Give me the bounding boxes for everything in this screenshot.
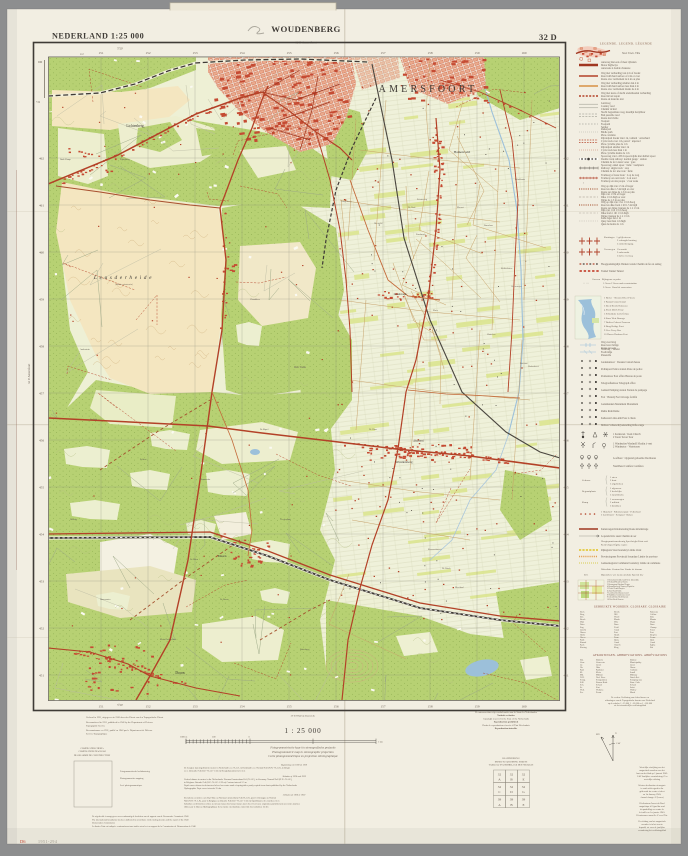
svg-text:De Halm: De Halm [190, 559, 198, 561]
svg-text:Westelijke afwijking van het: Westelijke afwijking van het [639, 766, 664, 769]
svg-text:B.S.: B.S. [584, 574, 589, 577]
svg-text:Kerk Chapel Église repère: Kerk Chapel Église repère [601, 543, 628, 546]
svg-text:De Ruif: De Ruif [408, 206, 416, 209]
svg-text:Waterlinie Custom line Limit: Waterlinie Custom line Limite de douane [601, 568, 643, 571]
svg-text:Église: Église [650, 644, 655, 647]
svg-text:La limite d'état est indiquée: La limite d'état est indiquée conforméme… [92, 825, 197, 828]
svg-text:32: 32 [498, 772, 502, 776]
svg-text:Quai de moins de 1 m: Quai de moins de 1 m [601, 223, 623, 226]
svg-text:COMPILATION DIAGRAM: COMPILATION DIAGRAM [78, 750, 105, 753]
svg-text:Brinkkanis: Brinkkanis [515, 179, 525, 181]
svg-text:Zwart: Zwart [596, 692, 602, 694]
svg-text:2 Kanaal Canal Canal: 2 Kanaal Canal Canal [604, 301, 626, 304]
svg-text:Politiepost Police station P: Politiepost Police station Poste de poli… [601, 368, 643, 371]
svg-text:156: 156 [333, 705, 338, 709]
svg-text:Grenskantoor · Douane Custom: Grenskantoor · Douane Custom house [601, 361, 641, 364]
svg-text:Décroissance annuelle: 6' vers: Décroissance annuelle: 6' vers l'Est. [636, 815, 668, 817]
svg-text:Tunnel Tunnel Tunnel: Tunnel Tunnel Tunnel [601, 270, 624, 273]
svg-text:De Kapel: De Kapel [260, 429, 269, 431]
svg-text:Militair Schietschijvenstellin: Militair Schietschijvenstelling Rifle-ra… [601, 424, 645, 427]
svg-text:bepaald; zie voor de jaarlijks: bepaald; zie voor de jaarlijkse [639, 827, 665, 829]
svg-text:459: 459 [563, 298, 568, 302]
svg-text:3 israëlitische: 3 israëlitische [610, 493, 625, 496]
svg-text:verandering het verklaringsbla: verandering het verklaringsblad [638, 829, 667, 832]
svg-text:Tramway en site propre · 2 sur: Tramway en site propre · 2 sur route [601, 180, 639, 183]
svg-text:Heihuis: Heihuis [70, 519, 77, 521]
svg-text:Vinkenhoef: Vinkenhoef [528, 365, 539, 368]
svg-text:Postkantoor Post office Bure: Postkantoor Post office Bureau de poste [601, 375, 643, 378]
svg-text:Levé photogrammetrique: Levé photogrammetrique [120, 784, 142, 787]
svg-text:460: 460 [39, 251, 44, 255]
svg-text:E: E [522, 778, 524, 782]
svg-text:la feuille au 1er janvier 1943: la feuille au 1er janvier 1943: [639, 811, 665, 814]
svg-text:hart van het blad op 1 januari: hart van het blad op 1 januari 1943: [636, 773, 668, 775]
svg-text:Den Treek: Den Treek [294, 366, 306, 369]
svg-text:Black: Black [630, 692, 636, 694]
svg-text:1000 m: 1000 m [180, 736, 187, 739]
svg-text:Moorst: Moorst [457, 207, 464, 209]
svg-text:De hoogten zijn uitgedrukt in: De hoogten zijn uitgedrukt in meters in … [184, 767, 290, 770]
svg-text:455: 455 [39, 486, 44, 490]
svg-text:Heetveld: Heetveld [374, 223, 383, 225]
svg-text:155: 155 [286, 51, 291, 55]
svg-text:Lopende Kilo steen Chemin de: Lopende Kilo steen Chemin de ser [601, 535, 636, 538]
svg-text:magnetisch noorden voor het: magnetisch noorden voor het [639, 769, 665, 772]
svg-text:COMPILATIESCHEMA: COMPILATIESCHEMA [80, 747, 104, 750]
svg-text:Ruïne Ruin Ruine: Ruïne Ruin Ruine [601, 410, 620, 413]
svg-text:noorden is in het terrein: noorden is in het terrein [642, 824, 664, 826]
svg-text:afkortingen van de Topografisc: afkortingen van de Topografische kaarten… [605, 699, 656, 702]
svg-text:Isobathes en décimètres reliée: Isobathes en décimètres reliées au nivea… [184, 804, 300, 806]
svg-text:10 Riet Reed Roseau: 10 Riet Reed Roseau [607, 599, 623, 601]
svg-text:Déclinaison d'ouest du Nord: Déclinaison d'ouest du Nord [640, 803, 666, 805]
svg-text:on 1st January 1943;: on 1st January 1943; [643, 794, 662, 796]
svg-text:39 B Wijk bij Duurstede: 39 B Wijk bij Duurstede [291, 715, 316, 718]
svg-text:456: 456 [39, 439, 44, 443]
svg-text:Zw.: Zw. [580, 692, 584, 694]
svg-text:1951-294: 1951-294 [38, 839, 57, 844]
svg-text:460: 460 [563, 251, 568, 255]
svg-text:Service Topographique: Service Topographique [86, 733, 107, 736]
svg-text:Reconnoitered in 1931, publish: Reconnoitered in 1931, published in 1942… [86, 721, 153, 724]
svg-text:NEDERLAND 1:25 000: NEDERLAND 1:25 000 [52, 32, 144, 41]
svg-text:2: 2 [583, 183, 584, 185]
svg-text:Kalkoven Lime-kiln Four à ch: Kalkoven Lime-kiln Four à chaux [601, 417, 636, 420]
svg-text:154: 154 [239, 51, 244, 55]
svg-text:Kamp: Kamp [582, 501, 589, 504]
svg-text:8 Brug Bridge Pont: 8 Brug Bridge Pont [604, 325, 624, 328]
svg-text:Depth curves drawn in decimetr: Depth curves drawn in decimetres below l… [184, 784, 297, 787]
svg-text:458: 458 [563, 345, 568, 349]
svg-text:3 afgebroken: 3 afgebroken [610, 482, 624, 485]
svg-text:151: 151 [98, 705, 103, 709]
svg-text:Chemin de fer: une voie · halt: Chemin de fer: une voie · halte [601, 170, 634, 173]
svg-text:magnétique à l'égard du nord: magnétique à l'égard du nord [639, 805, 665, 808]
svg-text:Zeldert: Zeldert [140, 459, 147, 461]
svg-text:Lichtenberg: Lichtenberg [126, 124, 143, 128]
svg-text:Route avec revêtement moins de: Route avec revêtement moins de 4 m [601, 88, 639, 91]
svg-text:De richting van het magnetisch: De richting van het magnetisch [638, 820, 666, 823]
svg-text:Begrenzing van 1938 en 1939: Begrenzing van 1938 en 1939 [281, 765, 308, 767]
svg-text:Droits de reproduction réservé: Droits de reproduction réservés à l'État… [482, 724, 529, 727]
svg-text:39: 39 [522, 798, 526, 802]
svg-text:Altitudes of 1938 and 1939: Altitudes of 1938 and 1939 [281, 775, 307, 778]
svg-text:Carte photogrammétrique en pro: Carte photogrammétrique en projection st… [268, 754, 338, 758]
svg-text:Route en mauvais état: Route en mauvais état [601, 98, 624, 101]
svg-text:1 Rivier · Stroom River Fle: 1 Rivier · Stroom River Fleuve [604, 297, 636, 300]
svg-text:Photogrammetric mapping: Photogrammetric mapping [120, 777, 144, 780]
svg-text:160: 160 [521, 705, 526, 709]
svg-text:32 D Amersfoort: 32 D Amersfoort [27, 364, 31, 384]
svg-text:ic north with regard to the: ic north with regard to the [641, 787, 664, 790]
svg-text:Ringelpoel: Ringelpoel [414, 439, 424, 442]
svg-text:9 Veer Ferry Bac: 9 Veer Ferry Bac [604, 329, 622, 332]
svg-text:Woudenberg: Woudenberg [395, 460, 412, 464]
svg-text:Altitudes de 1938 et 1939: Altitudes de 1938 et 1939 [282, 794, 306, 797]
svg-text:160: 160 [521, 51, 526, 55]
svg-text:t.o.v. Oostende Peil (O.P.=N.A: t.o.v. Oostende Peil (O.P.=N.A.P. -2.33 … [184, 770, 246, 773]
svg-text:Langesteeg: Langesteeg [341, 200, 352, 203]
svg-text:155: 155 [286, 705, 291, 709]
svg-text:457: 457 [563, 392, 568, 396]
svg-text:157: 157 [380, 705, 385, 709]
svg-text:Gebouw: Gebouw [582, 479, 591, 482]
svg-text:32: 32 [510, 772, 514, 776]
svg-text:452: 452 [563, 627, 568, 631]
svg-text:Western declination of magnet-: Western declination of magnet- [638, 784, 666, 787]
svg-text:Waterloo: Waterloo [487, 334, 496, 336]
svg-text:1°46' Jaarlijkse vermindering: 1°46' Jaarlijkse vermindering: 6' in [637, 775, 668, 778]
svg-text:157: 157 [380, 51, 385, 55]
svg-text:De afgebeelde is aangegeven ov: De afgebeelde is aangegeven overeenkomst… [92, 815, 189, 818]
svg-text:462: 462 [563, 157, 568, 161]
svg-text:Vlasakkers: Vlasakkers [250, 299, 260, 301]
svg-text:GEBRUIKTE WOORDEN. GLOSSARY.: GEBRUIKTE WOORDEN. GLOSSARY. GLOSSAIRE [594, 606, 666, 609]
svg-text:Gemeentegrens Communal bounda: Gemeentegrens Communal boundary Limite d… [601, 562, 661, 565]
svg-text:Topographic Service: Topographic Service [86, 725, 105, 728]
svg-text:455: 455 [563, 486, 568, 490]
svg-text:Leusbroek: Leusbroek [394, 292, 407, 296]
svg-text:39: 39 [510, 798, 514, 802]
svg-text:TABLEAU D'ASSEMBLAGE DES FEUIL: TABLEAU D'ASSEMBLAGE DES FEUILLES [489, 764, 534, 767]
svg-text:152: 152 [145, 51, 150, 55]
svg-text:461: 461 [563, 204, 568, 208]
svg-text:Bloeidaal: Bloeidaal [455, 587, 464, 589]
svg-text:Pijnenburg: Pijnenburg [120, 158, 130, 161]
svg-text:7 Duiker Culvert Ponceau: 7 Duiker Culvert Ponceau [604, 321, 631, 324]
svg-text:152: 152 [145, 705, 150, 709]
svg-text:De Brink: De Brink [442, 568, 451, 570]
svg-text:452: 452 [39, 627, 44, 631]
svg-text:3 Beek Brook Ruisseau: 3 Beek Brook Ruisseau [604, 305, 628, 308]
svg-text:Kunstwegen Kilometrering Rou: Kunstwegen Kilometrering Route kilométra… [601, 528, 649, 531]
svg-text:(militair oefenterrein): (militair oefenterrein) [115, 283, 133, 286]
svg-text:461: 461 [39, 204, 44, 208]
svg-text:Doorn: Doorn [175, 671, 184, 675]
svg-text:3 barakken: 3 barakken [610, 504, 622, 507]
svg-text:DM: DM [38, 61, 43, 64]
svg-text:Anderstein: Anderstein [80, 348, 91, 351]
svg-text:Bavoort: Bavoort [520, 363, 528, 365]
svg-text:Demarcation Commission: Demarcation Commission [92, 823, 116, 825]
svg-text:Gemaal Pumping station Stati: Gemaal Pumping station Station de pompag… [601, 389, 648, 392]
svg-text:Autoroute à double chaussée: Autoroute à double chaussée [601, 67, 631, 70]
svg-text:INDEX TO ADJOINING SHEETS: INDEX TO ADJOINING SHEETS [495, 760, 528, 763]
svg-text:E: E [522, 803, 524, 807]
svg-text:1 Grens 2 Grens onder conte: 1 Grens 2 Grens onder contestation [603, 282, 638, 285]
svg-text:159: 159 [474, 51, 479, 55]
svg-text:Annual change: 6' (lessen): Annual change: 6' (lessen) [640, 796, 663, 799]
svg-text:Hoogspanningslijn Werken ver: Hoogspanningslijn Werken verrek Chemin d… [601, 263, 662, 266]
svg-text:in Belgium: Ostende Peil (O.P.: in Belgium: Ostende Peil (O.P.=N.A.P. -2… [184, 781, 247, 784]
svg-text:De Haar: De Haar [369, 429, 377, 431]
svg-text:Loofhout · Opgaand geboomte D: Loofhout · Opgaand geboomte Deciduous [613, 457, 656, 460]
svg-text:Nimmerdor: Nimmerdor [200, 479, 210, 481]
svg-text:De verdere Verklaring van elde: De verdere Verklaring van elders binnen … [611, 696, 650, 699]
svg-text:Reconnaissance en 1931, publié: Reconnaissance en 1931, publié en 1942 p… [86, 729, 152, 732]
svg-text:Oude Kamp: Oude Kamp [60, 159, 72, 161]
svg-text:Klein Zwitserland: Klein Zwitserland [160, 639, 177, 641]
svg-text:Telegraafkantoor Telegraph of: Telegraafkantoor Telegraph office [601, 382, 636, 385]
svg-text:32: 32 [522, 772, 526, 776]
svg-text:Bijzondere wet Gemeentehuis: Bijzondere wet Gemeentehuis Special law [601, 574, 644, 577]
svg-text:Hydrographic Dept: curve inter: Hydrographic Dept: curve intervals 25 dm [184, 787, 221, 790]
svg-text:451: 451 [39, 674, 44, 678]
svg-text:159: 159 [474, 705, 479, 709]
svg-text:456: 456 [563, 439, 568, 443]
svg-text:Begraafplaats: Begraafplaats [582, 490, 596, 493]
svg-text:De Boom: De Boom [220, 599, 229, 601]
svg-text:Passerelle: Passerelle [601, 354, 612, 357]
svg-text:Zeisterweg: Zeisterweg [417, 198, 428, 201]
svg-text:De auteursrechten zijn voorbeh: De auteursrechten zijn voorbehouden aan … [475, 712, 538, 714]
svg-text:Null (N.N.=N.A.P.), pour la Be: Null (N.N.=N.A.P.), pour la Belgique au … [184, 800, 280, 803]
svg-text:Kouwenhoven: Kouwenhoven [428, 549, 442, 551]
svg-text:454: 454 [563, 533, 568, 537]
svg-text:Reproduction interdite: Reproduction interdite [495, 728, 517, 730]
svg-text:1°46': 1°46' [616, 742, 621, 745]
svg-text:Fort · Batterij Fort Ouvrage: Fort · Batterij Fort Ouvrage fortifié [601, 396, 638, 399]
svg-text:5°20': 5°20' [117, 48, 123, 51]
svg-text:Treekerpunt: Treekerpunt [280, 519, 291, 521]
svg-text:Ekris: Ekris [433, 310, 438, 312]
svg-text:WOUDENBERG: WOUDENBERG [271, 24, 341, 34]
svg-text:MN: MN [596, 734, 600, 736]
svg-text:39: 39 [498, 798, 502, 802]
svg-text:156: 156 [333, 51, 338, 55]
svg-text:3 Grens Bond de concession: 3 Grens Bond de concession [603, 286, 632, 289]
svg-text:158: 158 [427, 705, 432, 709]
svg-text:Hazenwater: Hazenwater [100, 599, 111, 601]
svg-text:1 km: 1 km [378, 741, 383, 744]
svg-text:Verkend in 1931, uitgegeven in: Verkend in 1931, uitgegeven in 1942 door… [86, 716, 164, 719]
svg-text:154: 154 [239, 705, 244, 709]
svg-text:32: 32 [522, 785, 526, 789]
svg-text:+22: +22 [36, 101, 41, 104]
svg-text:LEGENDE. LEGEND. LÉGENDE: LEGENDE. LEGEND. LÉGENDE [600, 41, 653, 46]
svg-text:grid north for centre of sheet: grid north for centre of sheet [639, 790, 664, 793]
svg-text:+++++: +++++ [583, 283, 590, 285]
svg-text:Leusderheide: Leusderheide [93, 275, 154, 281]
svg-text:Naaldhout Conifers Conifères: Naaldhout Conifers Conifères [613, 465, 644, 468]
svg-text:158: 158 [427, 51, 432, 55]
svg-text:Route avec revêtement de 4 m o: Route avec revêtement de 4 m ou plus [601, 78, 640, 81]
svg-text:Maarn: Maarn [218, 554, 227, 558]
svg-text:Ruiterberg: Ruiterberg [300, 648, 310, 651]
svg-text:Reproduction prohibited: Reproduction prohibited [494, 722, 519, 724]
svg-text:Elevations en mètres: aux Pays: Elevations en mètres: aux Pays-Bas: au N… [184, 797, 276, 800]
svg-text:AFKORTINGEN. ABBREVIATIONS.: AFKORTINGEN. ABBREVIATIONS. ABRÉVIATIONS [593, 654, 667, 657]
svg-text:459: 459 [39, 298, 44, 302]
svg-text:Rijksgrens Staat boundary Li: Rijksgrens Staat boundary Limite d'etat [601, 549, 642, 552]
svg-text:3 halve overweg: 3 halve overweg [617, 254, 634, 257]
svg-text:Rumelaar: Rumelaar [484, 225, 493, 227]
svg-text:AMERSFOORT: AMERSFOORT [379, 84, 478, 95]
svg-text:Gedenkteken Monument Monumen: Gedenkteken Monument Monument [601, 403, 638, 406]
svg-text:2 Toren Tower Tour: 2 Toren Tower Tour [613, 436, 633, 439]
svg-text:5 Schutsluis Lock Écluse: 5 Schutsluis Lock Écluse [604, 313, 630, 316]
svg-text:westelijke richting: westelijke richting [644, 778, 661, 781]
svg-text:Roi: Roi [650, 647, 654, 649]
svg-text:454: 454 [39, 533, 44, 537]
svg-text:153: 153 [192, 51, 197, 55]
svg-text:6 Stuw Weir Barrage: 6 Stuw Weir Barrage [604, 317, 626, 320]
svg-text:3 onderdoorgang: 3 onderdoorgang [617, 242, 634, 245]
svg-text:zie het afzonderlijke verklari: zie het afzonderlijke verklaringsblad [614, 704, 647, 707]
svg-text:10 Haven Harbour Port: 10 Haven Harbour Port [604, 333, 628, 336]
svg-text:453: 453 [39, 580, 44, 584]
svg-text:151: 151 [98, 51, 103, 55]
svg-text:Vertical datum: in metres in t: Vertical datum: in metres in the Netherl… [184, 778, 293, 781]
svg-text:Copyright reserved to the Stat: Copyright reserved to the State of the N… [483, 717, 529, 720]
svg-text:4 Sloot Ditch Fossé: 4 Sloot Ditch Fossé [604, 309, 625, 312]
svg-text:éditées par le Bureau Hydrogra: éditées par le Bureau Hydrographique de … [184, 806, 269, 809]
svg-text:Geeresteijn: Geeresteijn [511, 286, 522, 288]
svg-text:462: 462 [39, 157, 44, 161]
svg-text:Koning: Koning [580, 646, 587, 649]
svg-text:du quadrillage au centre de: du quadrillage au centre de [640, 808, 664, 811]
svg-text:DIAGRAMME DE CONSTRUCTION: DIAGRAMME DE CONSTRUCTION [74, 754, 111, 757]
svg-text:32 D: 32 D [539, 32, 557, 42]
svg-text:5°20': 5°20' [117, 704, 123, 707]
svg-text:D6: D6 [20, 839, 26, 844]
svg-text:Kolfschoten: Kolfschoten [501, 267, 513, 270]
svg-text:153: 153 [192, 705, 197, 709]
svg-text:453: 453 [563, 580, 568, 584]
svg-text:Hamersveld: Hamersveld [454, 150, 471, 154]
svg-text:Grenzen Rijksgrens en palen: Grenzen Rijksgrens en palen [592, 278, 622, 281]
svg-text:The international boundaries h: The international boundaries has been in… [92, 818, 189, 821]
svg-text:458: 458 [39, 345, 44, 349]
svg-text:Provinciegrens Provincial bou: Provinciegrens Provincial boundary Limit… [601, 556, 659, 559]
svg-text:De Valk: De Valk [90, 419, 98, 421]
svg-text:BLADINDELING: BLADINDELING [502, 757, 520, 760]
svg-text:2 Luchtvaart · Seinpaal · Bak: 2 Luchtvaart · Seinpaal · Baken [601, 514, 634, 517]
svg-text:451: 451 [563, 674, 568, 678]
svg-text:2 Windmotor · Watertoren: 2 Windmotor · Watertoren [613, 446, 641, 449]
svg-text:32: 32 [498, 785, 502, 789]
svg-text:1 : 25 000: 1 : 25 000 [285, 727, 322, 735]
svg-text:Fotogrammetrische luchtkarteri: Fotogrammetrische luchtkartering [120, 770, 151, 773]
svg-text:Zuurbroek: Zuurbroek [416, 234, 427, 236]
svg-text:32: 32 [510, 785, 514, 789]
svg-text:Stad. Town. Ville: Stad. Town. Ville [622, 52, 641, 55]
svg-text:457: 457 [39, 392, 44, 396]
svg-text:Nadruk verboden: Nadruk verboden [497, 715, 515, 717]
